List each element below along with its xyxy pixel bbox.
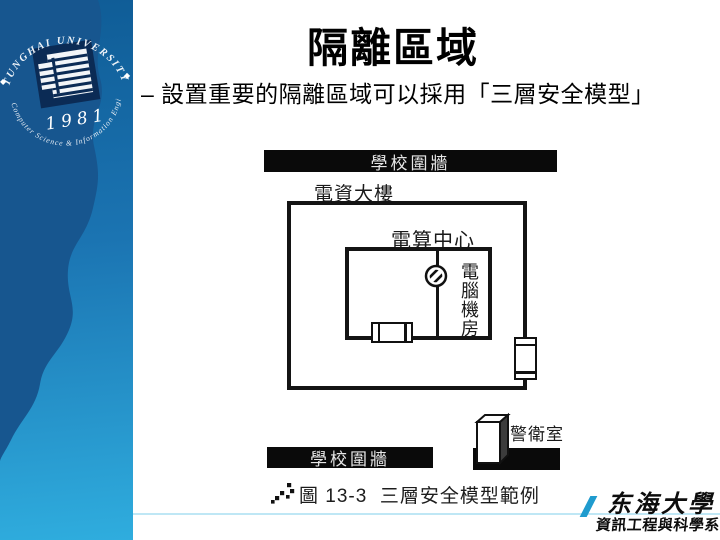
school-wall-top-bar: 學校圍牆 — [264, 150, 557, 172]
guard-room-label: 警衛室 — [510, 420, 564, 445]
figure-bullet-icon — [271, 482, 295, 504]
school-wall-bottom-label: 學校圍牆 — [310, 445, 390, 470]
seal-diamond-right-icon: ◆ — [124, 71, 131, 80]
university-seal-logo: 1981 TUNGHAI UNIVERSITY Computer Science… — [0, 2, 133, 177]
seal-diamond-left-icon: ◆ — [0, 77, 7, 86]
sidebar: 1981 TUNGHAI UNIVERSITY Computer Science… — [0, 0, 133, 540]
building-door-symbol — [514, 337, 537, 380]
page-title: 隔離區域 — [133, 14, 653, 74]
school-wall-bottom-bar: 學校圍牆 — [267, 447, 433, 468]
slide: 1981 TUNGHAI UNIVERSITY Computer Science… — [0, 0, 720, 540]
center-door-symbol — [371, 322, 413, 343]
bullet-text: – 設置重要的隔離區域可以採用「三層安全模型」 — [141, 75, 716, 109]
school-wall-top-label: 學校圍牆 — [371, 149, 451, 174]
computer-room-label: 電腦機房 — [456, 262, 482, 338]
footer-department-name: 資訊工程與科學系 — [595, 514, 720, 535]
figure-caption: 圖 13-3 三層安全模型範例 — [299, 481, 540, 508]
restricted-access-icon — [423, 263, 449, 289]
